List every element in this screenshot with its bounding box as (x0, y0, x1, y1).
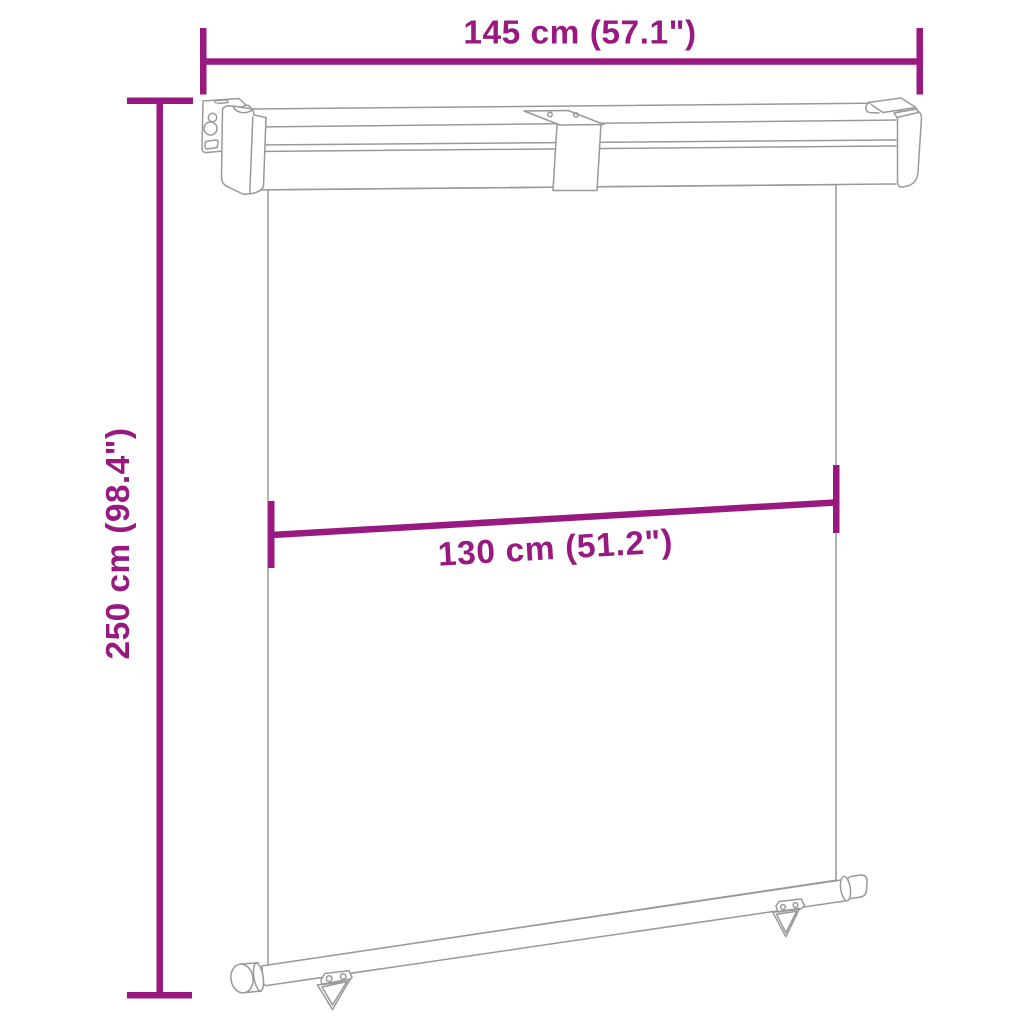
svg-text:145 cm (57.1"): 145 cm (57.1") (463, 15, 696, 52)
svg-text:250 cm (98.4"): 250 cm (98.4") (100, 428, 137, 660)
